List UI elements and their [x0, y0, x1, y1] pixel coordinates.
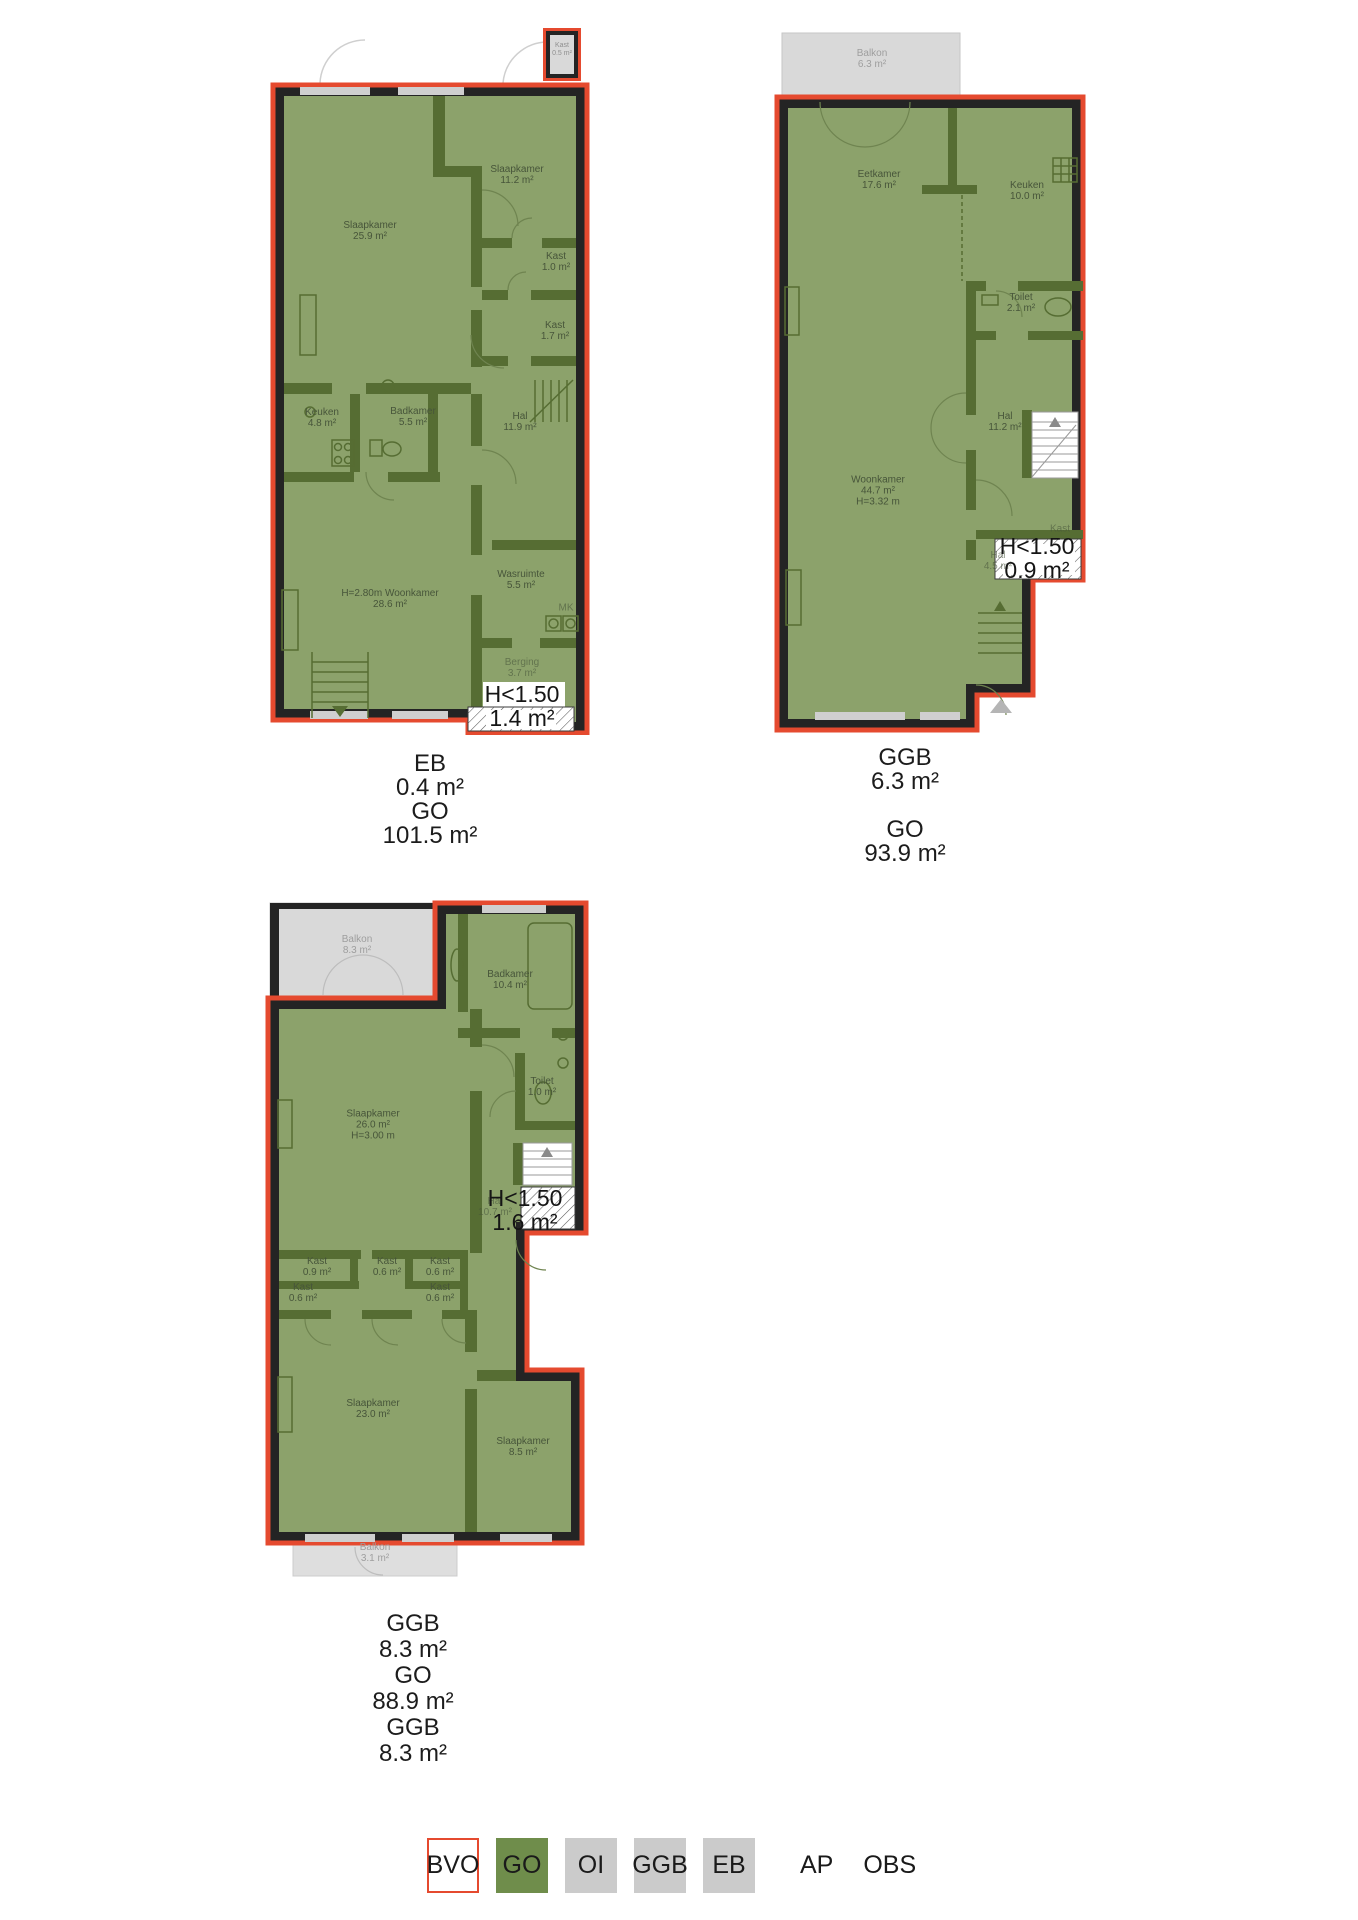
room-label-mk: MK [559, 603, 574, 614]
room-label-kast: Kast0.6 m² [426, 1256, 454, 1278]
legend-label-obs: OBS [863, 1851, 916, 1880]
room-label-kast: Kast0.6 m² [373, 1256, 401, 1278]
legend-item-ggb: GGB [634, 1838, 686, 1893]
low-headroom-label: H<1.50 1.4 m² [485, 682, 560, 730]
floor-plan-1-drawing [270, 20, 590, 735]
room-label-kast: Kast1.7 m² [541, 320, 569, 342]
legend-label-go: GO [503, 1851, 542, 1880]
room-label-slaapkamer: Slaapkamer25.9 m² [343, 220, 396, 242]
room-label-keuken: Keuken10.0 m² [1010, 180, 1044, 202]
room-label-berging: Berging3.7 m² [505, 657, 539, 679]
legend-label-ggb: GGB [632, 1851, 688, 1880]
balcony-label: Balkon6.3 m² [857, 48, 888, 70]
room-label-woonkamer: H=2.80m Woonkamer 28.6 m² [341, 588, 438, 610]
room-label-badkamer: Badkamer10.4 m² [487, 969, 533, 991]
room-label-slaapkamer: Slaapkamer26.0 m² H=3.00 m [346, 1109, 399, 1142]
low-headroom-label: H<1.50 0.9 m² [1000, 534, 1075, 582]
legend: BVO GO OI GGB EB AP OBS [427, 1838, 916, 1893]
legend-item-go: GO [496, 1838, 548, 1893]
room-label-wasruimte: Wasruimte5.5 m² [497, 569, 544, 591]
legend-item-ap: AP [800, 1851, 833, 1880]
room-label-hal: Hal11.2 m² [988, 411, 1021, 433]
room-label-kast: Kast0.6 m² [426, 1282, 454, 1304]
legend-item-obs: OBS [863, 1851, 916, 1880]
room-label-woonkamer: Woonkamer44.7 m² H=3.32 m [851, 475, 905, 508]
room-label-slaapkamer: Slaapkamer11.2 m² [490, 164, 543, 186]
room-label-kast: Kast0.6 m² [289, 1282, 317, 1304]
closet-badge-label: Kast 0.5 m² [550, 35, 574, 74]
room-label-slaapkamer: Slaapkamer8.5 m² [496, 1436, 549, 1458]
low-headroom-label: H<1.50 1.6 m² [488, 1186, 563, 1234]
room-label-slaapkamer: Slaapkamer23.0 m² [346, 1398, 399, 1420]
caption-plan-2: GGB 6.3 m² GO 93.9 m² [805, 744, 1005, 864]
room-label-toilet: Toilet2.1 m² [1007, 292, 1035, 314]
floor-plan-2-drawing [770, 25, 1090, 740]
room-label-eetkamer: Eetkamer17.6 m² [858, 169, 901, 191]
legend-label-eb: EB [712, 1851, 745, 1880]
caption-plan-1: EB 0.4 m² GO 101.5 m² [330, 750, 530, 846]
legend-item-bvo: BVO [427, 1838, 479, 1893]
balcony-label: Balkon3.1 m² [360, 1542, 391, 1564]
closet-badge: Kast 0.5 m² [543, 28, 581, 81]
room-label-hal: Hal11.9 m² [503, 411, 536, 433]
legend-item-oi: OI [565, 1838, 617, 1893]
room-label-toilet: Toilet1.0 m² [528, 1076, 556, 1098]
legend-label-oi: OI [578, 1851, 604, 1880]
room-label-kast: Kast1.0 m² [542, 251, 570, 273]
room-label-kast: Kast0.9 m² [303, 1256, 331, 1278]
legend-label-ap: AP [800, 1851, 833, 1880]
balcony-label: Balkon8.3 m² [342, 934, 373, 956]
legend-item-eb: EB [703, 1838, 755, 1893]
room-label-keuken: Keuken4.8 m² [305, 407, 339, 429]
floor-plan-3-drawing [260, 895, 595, 1590]
caption-plan-3: GGB 8.3 m² GO 88.9 m² GGB 8.3 m² [313, 1610, 513, 1766]
legend-label-bvo: BVO [427, 1851, 480, 1880]
room-label-badkamer: Badkamer5.5 m² [390, 406, 436, 428]
floorplan-sheet: Kast 0.5 m² Slaapkamer25.9 m² Slaapkamer… [0, 0, 1358, 1920]
